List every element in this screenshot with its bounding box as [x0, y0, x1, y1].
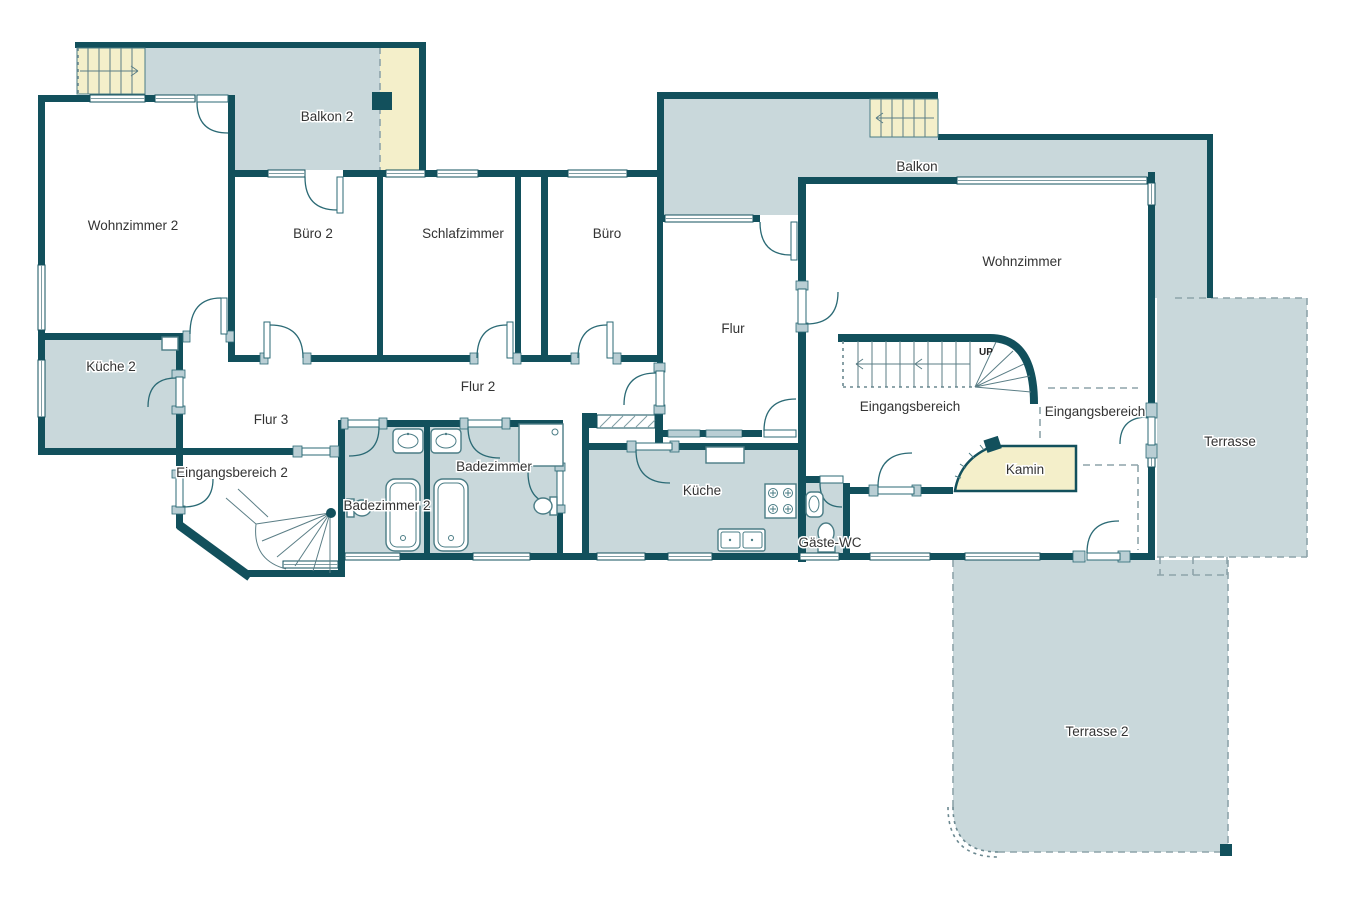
label-buero-2: Büro 2	[293, 226, 333, 241]
floor-plan-drawing: Wohnzimmer 2 Balkon 2 Büro 2 Schlafzimme…	[0, 0, 1352, 900]
window	[90, 95, 145, 102]
door-buero2-balkon2	[305, 177, 343, 213]
label-wohnzimmer: Wohnzimmer	[982, 254, 1062, 269]
window	[38, 360, 45, 417]
door-eingangsbereich-sued	[869, 453, 921, 496]
label-eingangsbereich-b: Eingangsbereich	[1045, 404, 1146, 419]
label-flur-3: Flur 3	[254, 412, 289, 427]
window	[437, 170, 478, 177]
kueche2-duct	[162, 337, 178, 350]
label-eingangsbereich: Eingangsbereich	[860, 399, 961, 414]
door-flur-wohnzimmer	[796, 281, 838, 332]
window	[870, 553, 930, 560]
window	[473, 553, 530, 560]
door-terrasse2	[1073, 521, 1130, 562]
stair-winder	[226, 489, 336, 573]
label-stair-up: UP	[979, 347, 993, 358]
sink	[393, 429, 423, 453]
terrasse-area	[1157, 298, 1307, 557]
stair-newel-post	[326, 508, 336, 518]
window	[155, 95, 195, 102]
passage-flur3-eingang2	[293, 446, 339, 457]
label-wohnzimmer-2: Wohnzimmer 2	[88, 218, 179, 233]
window	[668, 553, 712, 560]
label-badezimmer: Badezimmer	[456, 459, 532, 474]
bathtub	[386, 479, 420, 551]
window	[957, 177, 1147, 184]
label-balkon-2: Balkon 2	[301, 109, 354, 124]
toilet	[534, 497, 557, 515]
label-kueche-2: Küche 2	[86, 359, 136, 374]
door-schlafzimmer-flur2	[470, 322, 521, 364]
hatched-window	[597, 415, 655, 428]
door-balkon-flur	[760, 222, 797, 260]
label-schlafzimmer: Schlafzimmer	[422, 226, 504, 241]
window	[386, 170, 425, 177]
stair-interior-up	[838, 338, 1034, 404]
label-badezimmer-2: Badezimmer 2	[343, 498, 430, 513]
door-wohnzimmer2-flur3	[183, 298, 234, 342]
bathtub	[434, 479, 468, 551]
door-flur-south	[764, 399, 796, 437]
window	[665, 215, 753, 222]
door-buero-flur2	[571, 322, 621, 364]
sink	[431, 429, 461, 453]
terrasse-2-area	[953, 560, 1228, 852]
door-buero2-flur2	[260, 322, 311, 364]
window	[568, 170, 627, 177]
label-gaeste-wc: Gäste-WC	[798, 535, 861, 550]
label-eingangsbereich-2: Eingangsbereich 2	[176, 465, 288, 480]
balkon-2-pillar	[372, 92, 392, 110]
window	[268, 170, 305, 177]
sink	[806, 492, 823, 517]
window	[345, 553, 400, 560]
terrasse-2-corner-post	[1220, 844, 1232, 856]
stair-top-left	[77, 48, 145, 94]
label-terrasse: Terrasse	[1204, 434, 1256, 449]
kitchen-counter-gap	[706, 447, 744, 463]
label-kamin: Kamin	[1006, 462, 1044, 477]
window	[800, 553, 839, 560]
window	[965, 553, 1040, 560]
door-flur-flur2	[624, 363, 665, 414]
stove	[765, 484, 796, 518]
window	[1148, 183, 1155, 205]
label-flur-2: Flur 2	[461, 379, 496, 394]
label-flur: Flur	[721, 321, 745, 336]
label-kueche: Küche	[683, 483, 721, 498]
floor-plan: Wohnzimmer 2 Balkon 2 Büro 2 Schlafzimme…	[0, 0, 1352, 900]
label-terrasse-2: Terrasse 2	[1065, 724, 1128, 739]
kueche-2-area	[45, 340, 176, 448]
label-buero: Büro	[593, 226, 622, 241]
door-wohnzimmer2-balkon2	[197, 95, 228, 133]
window	[38, 265, 45, 330]
window	[597, 553, 645, 560]
kitchen-sink	[718, 529, 765, 551]
label-balkon: Balkon	[896, 159, 937, 174]
stair-balkon	[870, 99, 938, 137]
